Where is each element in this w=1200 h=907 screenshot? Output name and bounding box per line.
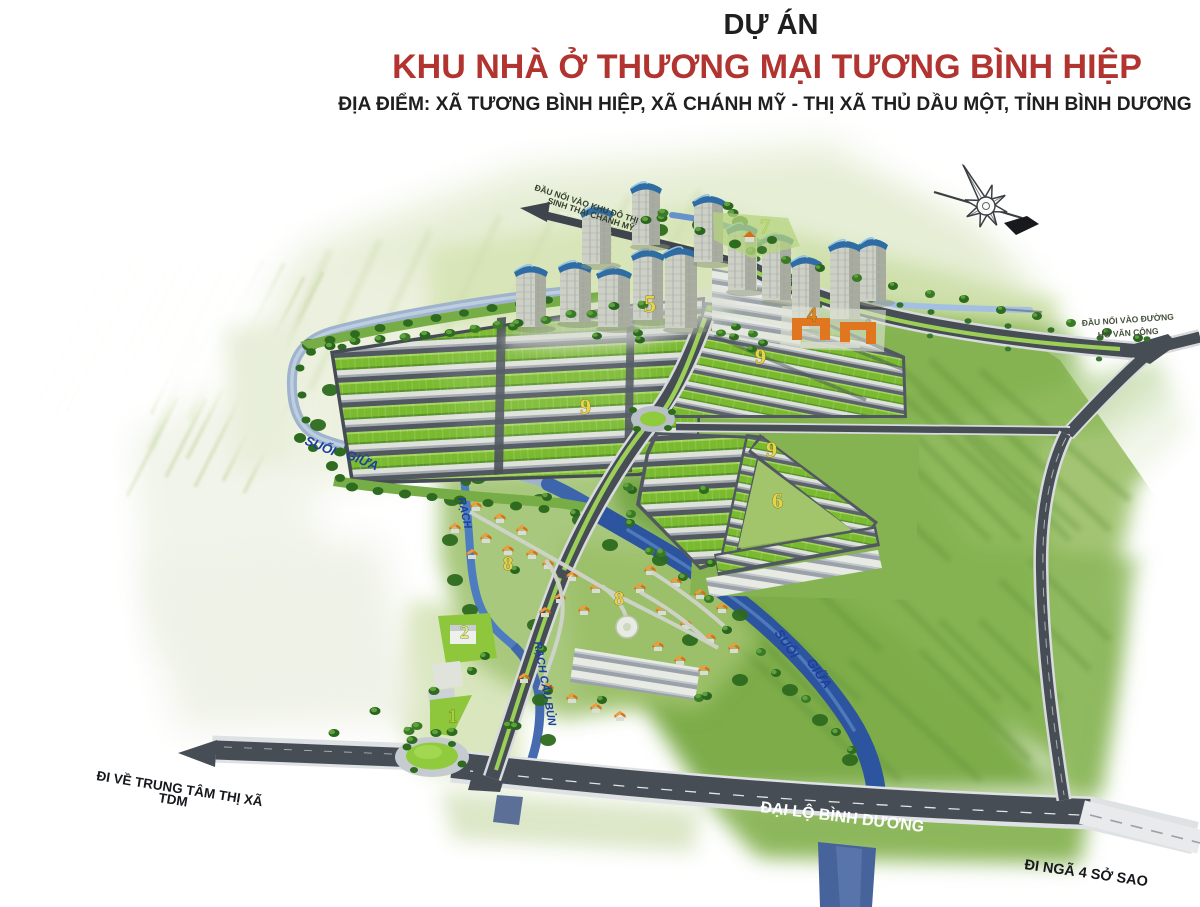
svg-text:DỰ ÁN: DỰ ÁN	[724, 7, 819, 41]
svg-text:9: 9	[755, 344, 766, 369]
svg-text:5: 5	[644, 292, 656, 318]
svg-text:KHU NHÀ Ở THƯƠNG MẠI TƯƠNG BÌN: KHU NHÀ Ở THƯƠNG MẠI TƯƠNG BÌNH HIỆP	[392, 48, 1142, 86]
svg-text:2: 2	[460, 622, 469, 642]
svg-text:6: 6	[772, 488, 783, 513]
svg-text:4: 4	[807, 304, 817, 326]
svg-text:9: 9	[580, 394, 591, 419]
svg-text:ĐỊA ĐIỂM: XÃ TƯƠNG BÌNH HIỆP,: ĐỊA ĐIỂM: XÃ TƯƠNG BÌNH HIỆP, XÃ CHÁNH M…	[338, 93, 1191, 115]
svg-text:8: 8	[614, 588, 624, 610]
svg-text:1: 1	[448, 706, 457, 726]
svg-text:9: 9	[766, 437, 777, 462]
svg-text:8: 8	[503, 553, 513, 575]
